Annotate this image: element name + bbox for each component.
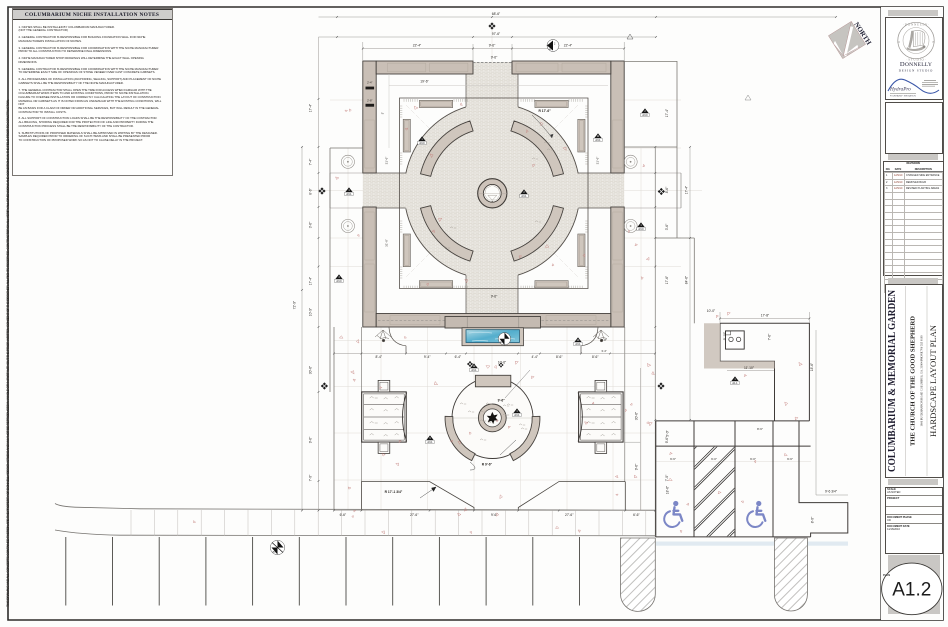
svg-text:22'-4": 22'-4" bbox=[413, 44, 422, 48]
svg-text:19'-6": 19'-6" bbox=[420, 79, 429, 83]
svg-text:9'-6": 9'-6" bbox=[670, 457, 676, 461]
svg-text:8'-6": 8'-6" bbox=[592, 355, 599, 359]
svg-text:A3.0: A3.0 bbox=[642, 114, 648, 117]
svg-text:9'-0": 9'-0" bbox=[711, 457, 717, 461]
svg-text:8'-6": 8'-6" bbox=[309, 187, 313, 194]
svg-text:10'-0": 10'-0" bbox=[707, 309, 716, 313]
svg-text:9'-6": 9'-6" bbox=[309, 436, 313, 443]
svg-text:9'-6 3/4": 9'-6 3/4" bbox=[825, 489, 838, 493]
svg-text:18'-6": 18'-6" bbox=[666, 485, 670, 494]
svg-text:A1.2: A1.2 bbox=[892, 580, 931, 601]
svg-text:A3.1: A3.1 bbox=[575, 343, 581, 346]
svg-text:17'-8": 17'-8" bbox=[761, 313, 770, 317]
svg-text:· D O N N E L L Y ·: · D O N N E L L Y · bbox=[903, 22, 929, 26]
svg-text:A3.0: A3.0 bbox=[638, 228, 644, 231]
svg-text:1066 BUCKHANNON ROAD COLUMBUS,: 1066 BUCKHANNON ROAD COLUMBUS, GA. 31904… bbox=[920, 335, 923, 427]
svg-text:84'-6": 84'-6" bbox=[685, 275, 689, 284]
svg-text:30'-6": 30'-6" bbox=[309, 365, 313, 374]
svg-text:9'-6": 9'-6" bbox=[489, 44, 496, 48]
svg-text:COLUMBARIUM & MEMORIAL GARDEN: COLUMBARIUM & MEMORIAL GARDEN bbox=[887, 290, 898, 472]
svg-text:6'-4": 6'-4" bbox=[455, 355, 462, 359]
svg-text:R 17'-6": R 17'-6" bbox=[538, 109, 551, 113]
svg-text:R 9'-6": R 9'-6" bbox=[482, 463, 493, 467]
svg-text:7'-6": 7'-6" bbox=[767, 333, 771, 340]
svg-text:9'-0": 9'-0" bbox=[750, 457, 756, 461]
svg-text:8'-4": 8'-4" bbox=[376, 355, 383, 359]
svg-text:72'-9": 72'-9" bbox=[293, 300, 297, 309]
svg-text:A3.1: A3.1 bbox=[427, 441, 433, 444]
svg-text:22'-4": 22'-4" bbox=[564, 44, 573, 48]
svg-text:27'-6": 27'-6" bbox=[410, 513, 419, 517]
svg-text:A3.1: A3.1 bbox=[471, 369, 477, 372]
svg-text:9'-6": 9'-6" bbox=[491, 295, 498, 299]
svg-text:3'-4": 3'-4" bbox=[601, 349, 606, 353]
svg-text:· S T U D I O ·: · S T U D I O · bbox=[906, 57, 925, 61]
svg-text:THIS DRAWING AND ALL CONCEPTS: THIS DRAWING AND ALL CONCEPTS CONTAINED … bbox=[6, 99, 10, 607]
svg-text:17'-4": 17'-4" bbox=[309, 276, 313, 285]
svg-text:DONNELLY: DONNELLY bbox=[899, 61, 931, 68]
svg-text:N: N bbox=[932, 40, 935, 44]
svg-text:31'-6": 31'-6" bbox=[384, 239, 388, 247]
svg-text:10'-9": 10'-9" bbox=[309, 307, 313, 316]
svg-text:5'-0": 5'-0" bbox=[666, 429, 670, 436]
svg-text:17'-4": 17'-4" bbox=[309, 103, 313, 112]
svg-text:3'-6": 3'-6" bbox=[309, 221, 313, 228]
svg-text:A1.1: A1.1 bbox=[732, 382, 738, 385]
svg-text:8'-6": 8'-6" bbox=[665, 186, 669, 193]
svg-text:11'-10": 11'-10" bbox=[744, 366, 755, 370]
svg-text:17'-4": 17'-4" bbox=[665, 108, 669, 117]
svg-text:68'-6": 68'-6" bbox=[492, 12, 501, 16]
svg-text:D: D bbox=[897, 40, 900, 44]
svg-text:7'-0": 7'-0" bbox=[309, 474, 313, 481]
svg-text:17'-4": 17'-4" bbox=[685, 185, 689, 194]
svg-text:2'-8": 2'-8" bbox=[367, 99, 372, 103]
svg-text:FOUNTAINS • IRRIGATION: FOUNTAINS • IRRIGATION bbox=[890, 94, 916, 97]
svg-text:A3.0: A3.0 bbox=[419, 142, 425, 145]
svg-text:97'-6": 97'-6" bbox=[492, 32, 501, 36]
svg-text:9'-10": 9'-10" bbox=[723, 331, 727, 340]
svg-text:A3.0: A3.0 bbox=[336, 280, 342, 283]
svg-text:9'-6": 9'-6" bbox=[634, 463, 638, 470]
svg-text:A3.1: A3.1 bbox=[521, 195, 527, 198]
svg-text:5": 5" bbox=[381, 112, 385, 114]
svg-text:4'-4": 4'-4" bbox=[532, 355, 539, 359]
svg-text:PLAN: PLAN bbox=[883, 573, 890, 577]
svg-text:8'-0": 8'-0" bbox=[811, 516, 815, 523]
svg-text:2'-4": 2'-4" bbox=[367, 81, 372, 85]
svg-text:8'-6": 8'-6" bbox=[556, 355, 563, 359]
svg-text:R 17'-1 3/4": R 17'-1 3/4" bbox=[385, 490, 403, 494]
svg-text:A3.1: A3.1 bbox=[346, 193, 352, 196]
svg-text:18'-6": 18'-6" bbox=[810, 362, 814, 371]
svg-text:8'-6": 8'-6" bbox=[757, 427, 763, 431]
svg-text:A3.1: A3.1 bbox=[514, 414, 520, 417]
svg-text:A3.1: A3.1 bbox=[595, 139, 601, 142]
svg-text:27'-6": 27'-6" bbox=[565, 513, 574, 517]
svg-text:31'-6": 31'-6" bbox=[384, 157, 388, 165]
svg-text:9'-4": 9'-4" bbox=[424, 355, 431, 359]
svg-text:HydraPro: HydraPro bbox=[889, 86, 911, 92]
svg-text:9'-6": 9'-6" bbox=[491, 56, 498, 60]
svg-text:17'-6": 17'-6" bbox=[665, 275, 669, 284]
svg-text:3'-6": 3'-6" bbox=[665, 223, 669, 230]
svg-text:A1.0: A1.0 bbox=[273, 551, 278, 554]
svg-text:HARDSCAPE LAYOUT PLAN: HARDSCAPE LAYOUT PLAN bbox=[929, 325, 938, 437]
svg-text:DESIGN STUDIO: DESIGN STUDIO bbox=[898, 68, 932, 72]
svg-text:6'-6": 6'-6" bbox=[340, 513, 347, 517]
svg-text:2'-8": 2'-8" bbox=[601, 338, 606, 342]
svg-text:THE CHURCH OF THE GOOD SHEPHER: THE CHURCH OF THE GOOD SHEPHERD bbox=[909, 316, 916, 446]
svg-text:31'-6": 31'-6" bbox=[596, 157, 600, 165]
svg-text:6'-6": 6'-6" bbox=[633, 513, 640, 517]
svg-text:7'-4": 7'-4" bbox=[309, 158, 313, 165]
svg-text:9'-6": 9'-6" bbox=[498, 398, 506, 402]
svg-text:30'-6": 30'-6" bbox=[634, 411, 638, 420]
svg-text:9'-6": 9'-6" bbox=[787, 457, 793, 461]
